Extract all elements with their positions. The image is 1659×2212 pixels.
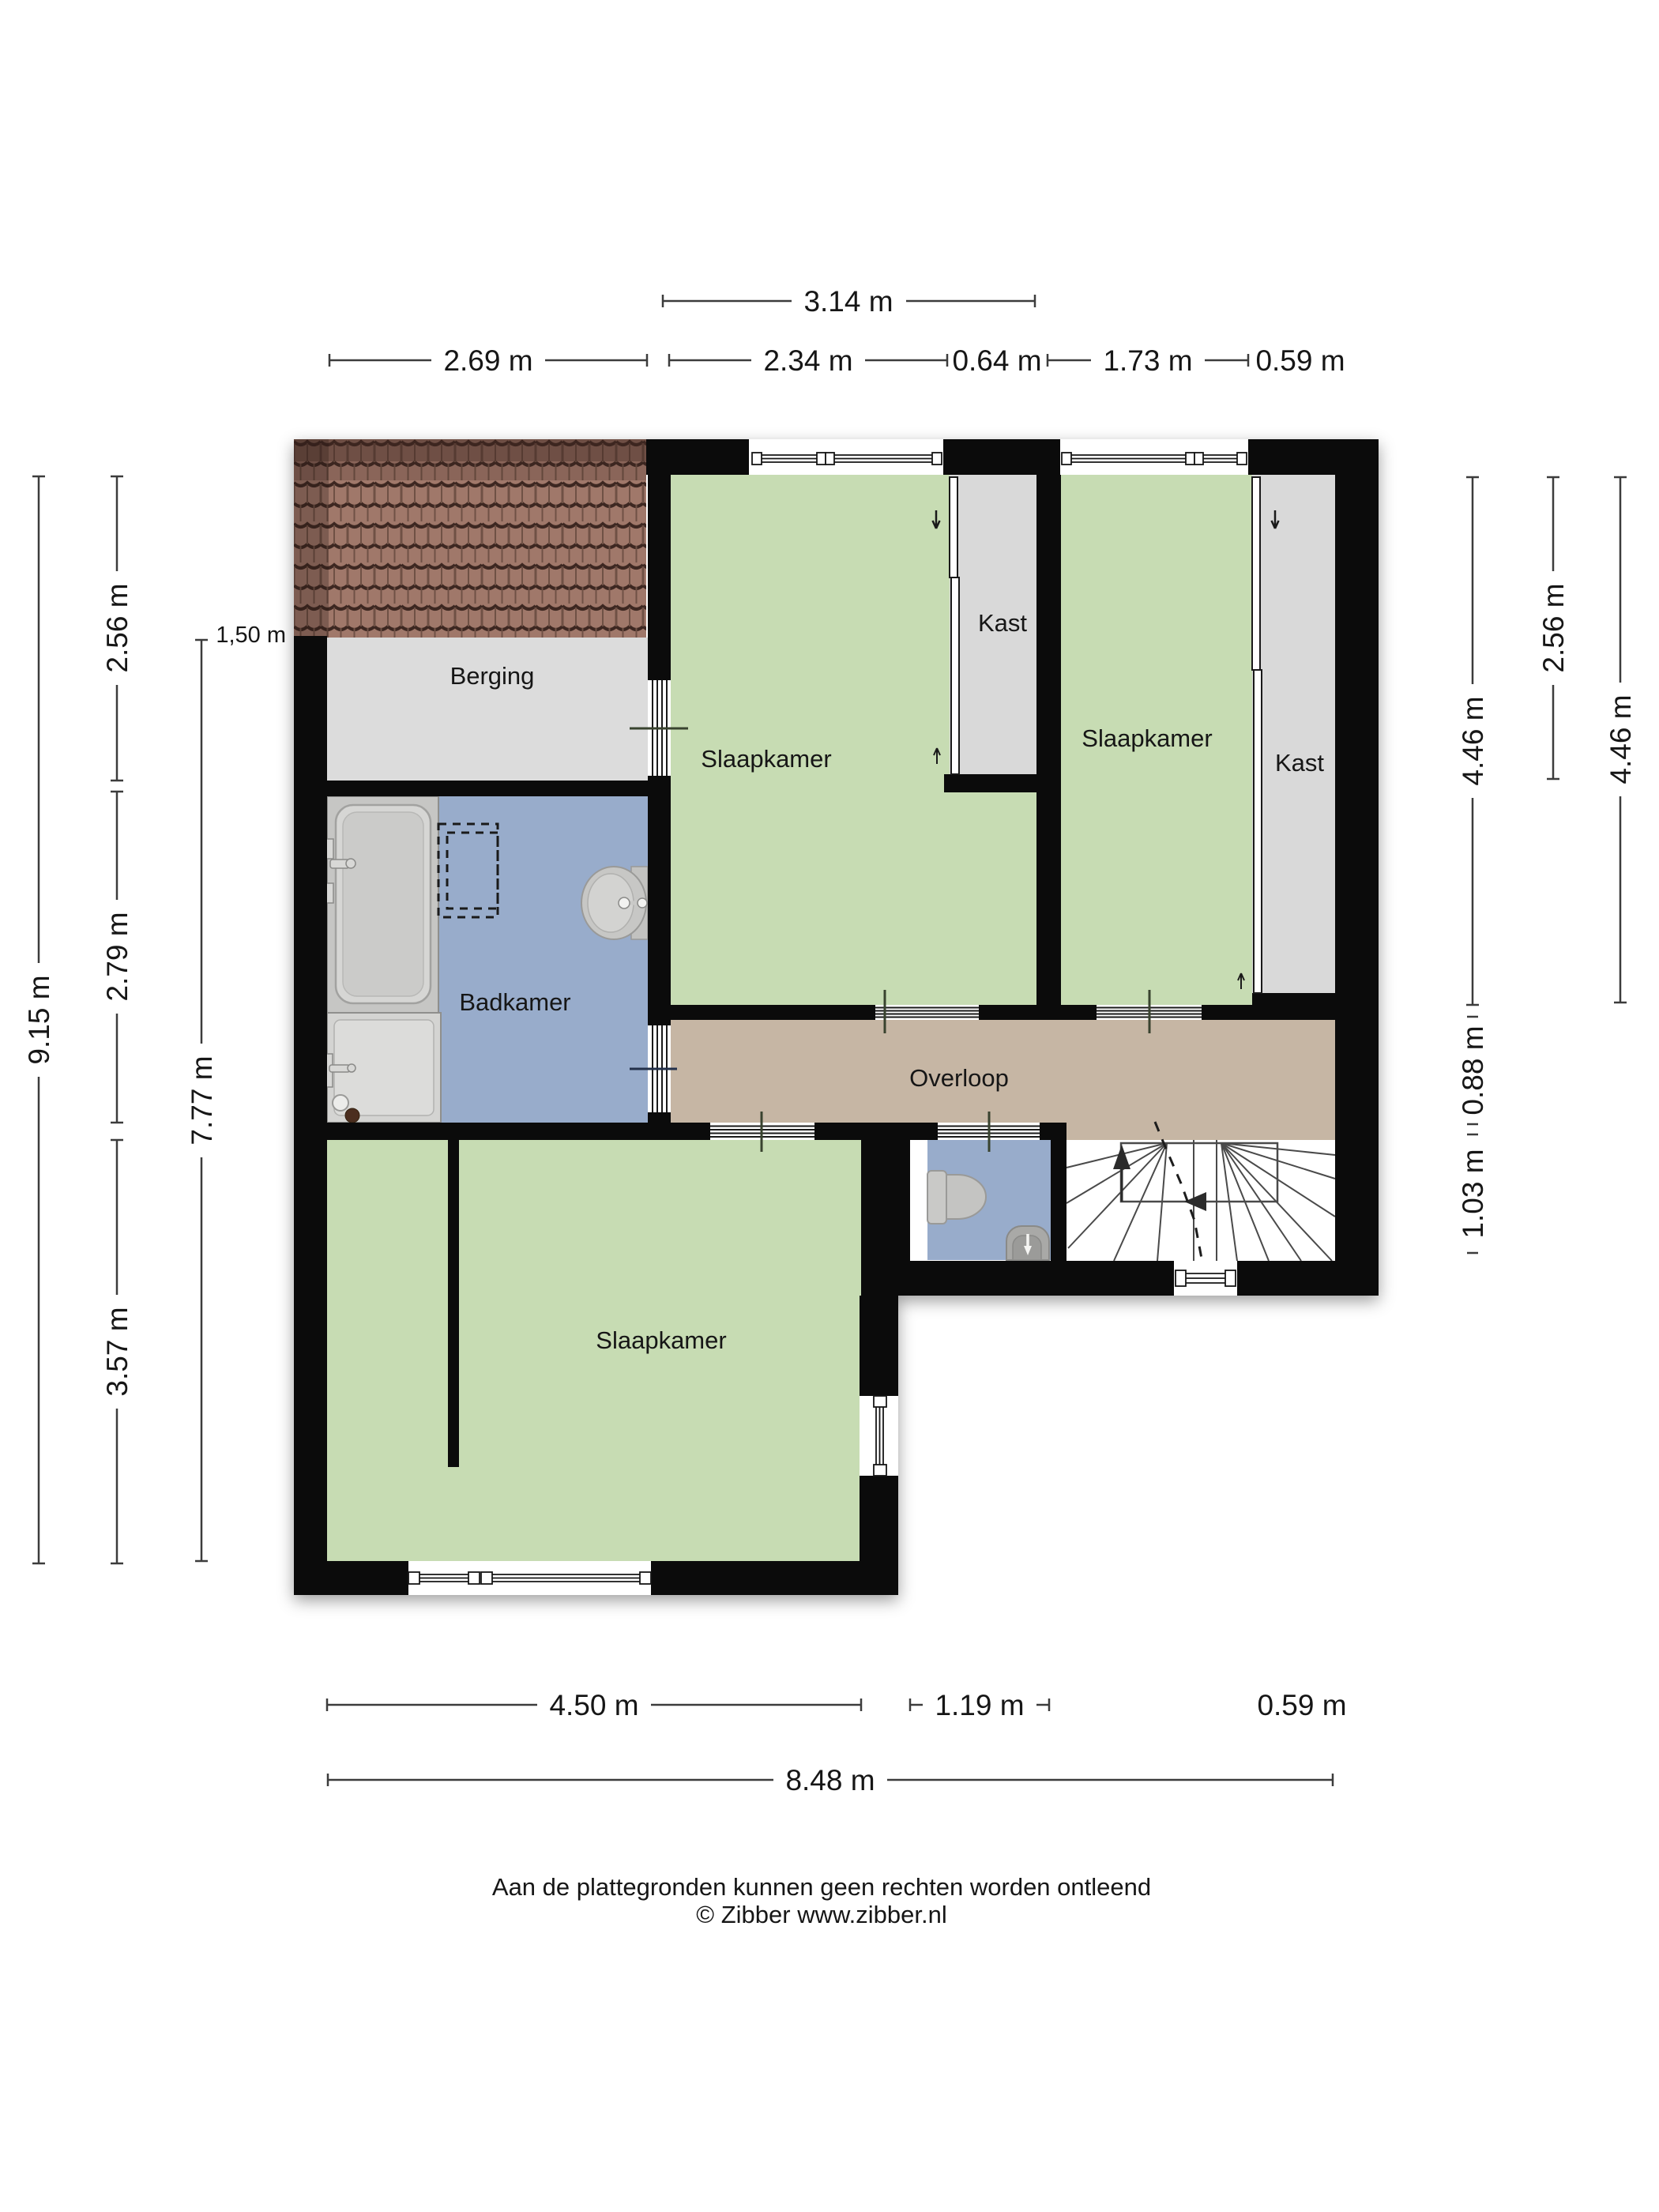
- svg-text:4.50 m: 4.50 m: [549, 1689, 638, 1721]
- svg-text:4.46 m: 4.46 m: [1457, 696, 1489, 785]
- svg-text:1.19 m: 1.19 m: [935, 1689, 1024, 1721]
- svg-text:0.64 m: 0.64 m: [952, 344, 1041, 377]
- svg-text:© Zibber www.zibber.nl: © Zibber www.zibber.nl: [696, 1901, 946, 1928]
- svg-text:Berging: Berging: [450, 662, 535, 690]
- svg-text:Slaapkamer: Slaapkamer: [701, 745, 831, 773]
- svg-text:4.46 m: 4.46 m: [1604, 694, 1637, 784]
- svg-text:2.69 m: 2.69 m: [443, 344, 532, 377]
- svg-text:Kast: Kast: [978, 609, 1027, 637]
- svg-text:0.88 m: 0.88 m: [1457, 1025, 1489, 1115]
- svg-text:2.34 m: 2.34 m: [763, 344, 852, 377]
- svg-text:3.57 m: 3.57 m: [101, 1307, 134, 1396]
- svg-text:Kast: Kast: [1275, 749, 1324, 777]
- svg-text:0.59 m: 0.59 m: [1255, 344, 1345, 377]
- svg-text:1,50 m: 1,50 m: [216, 623, 286, 648]
- svg-text:7.77 m: 7.77 m: [186, 1055, 218, 1145]
- svg-text:Slaapkamer: Slaapkamer: [596, 1326, 726, 1354]
- svg-text:Slaapkamer: Slaapkamer: [1082, 724, 1212, 752]
- svg-text:0.59 m: 0.59 m: [1257, 1689, 1346, 1721]
- svg-text:9.15 m: 9.15 m: [23, 975, 55, 1064]
- svg-text:Aan de plattegronden kunnen ge: Aan de plattegronden kunnen geen rechten…: [492, 1873, 1151, 1901]
- svg-text:1.73 m: 1.73 m: [1103, 344, 1192, 377]
- svg-text:1.03 m: 1.03 m: [1457, 1149, 1489, 1238]
- svg-text:2.56 m: 2.56 m: [101, 583, 134, 672]
- svg-text:3.14 m: 3.14 m: [803, 285, 893, 318]
- svg-text:Overloop: Overloop: [909, 1064, 1009, 1092]
- svg-text:8.48 m: 8.48 m: [785, 1764, 875, 1796]
- svg-text:2.56 m: 2.56 m: [1537, 583, 1570, 672]
- svg-text:2.79 m: 2.79 m: [101, 912, 134, 1001]
- svg-text:Badkamer: Badkamer: [459, 988, 570, 1016]
